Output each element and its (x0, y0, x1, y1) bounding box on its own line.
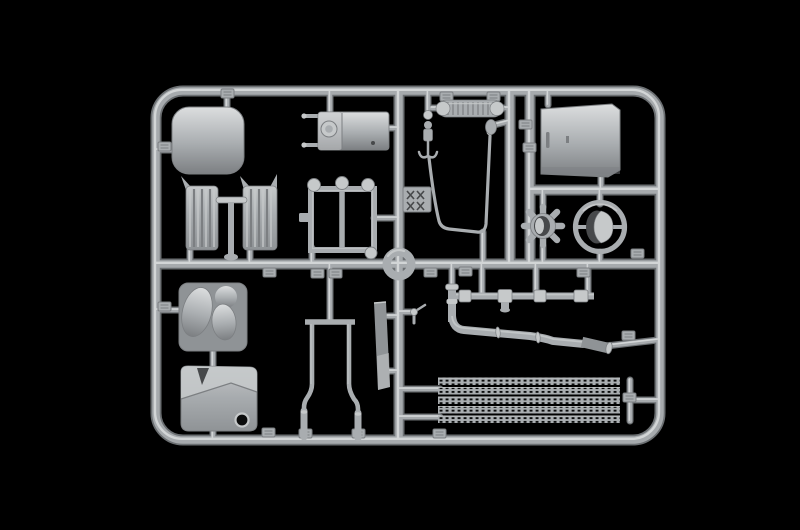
sprue-svg (0, 0, 800, 530)
engine-cover-part (181, 366, 257, 431)
intercooler-core (436, 100, 504, 117)
air-tank-left (181, 176, 218, 250)
tread-plates (438, 378, 620, 424)
door-panel (541, 104, 620, 177)
mirror-part (486, 120, 497, 135)
sprue-id-tag (403, 187, 431, 212)
wheel-hub-part (524, 207, 562, 245)
seat-cushion-part (177, 283, 247, 351)
roof-panel (172, 107, 244, 174)
sprue-photo (0, 0, 800, 530)
